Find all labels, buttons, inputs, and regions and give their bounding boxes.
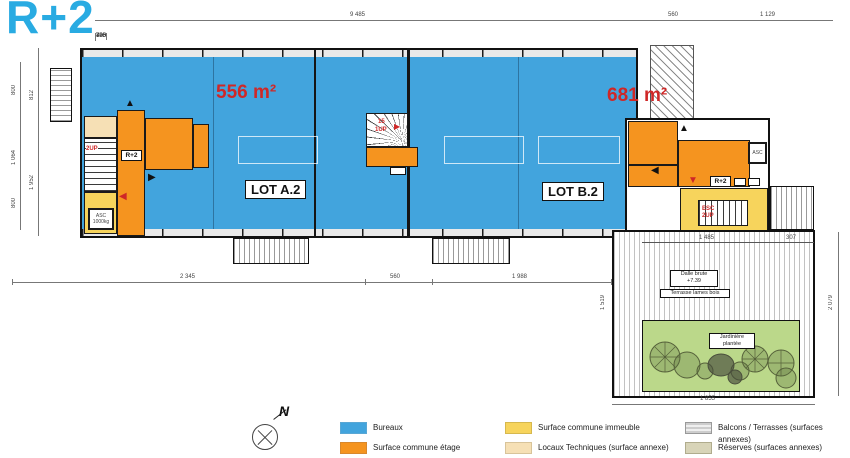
terrace-dim-1485: 1 485 xyxy=(699,235,714,242)
mid-stair-count: 15 xyxy=(378,119,385,125)
dim-left-800b: 800 xyxy=(11,198,17,208)
legend-swatch-bureaux xyxy=(340,422,367,434)
planter-label: Jardinière plantée xyxy=(709,333,755,349)
planter: Jardinière plantée xyxy=(642,320,800,392)
terrace-slab-note-2: +7.39 xyxy=(671,278,717,285)
right-core-wc-block xyxy=(628,121,678,165)
dim-bottom-1988: 1 988 xyxy=(512,274,527,281)
dim-left-1064: 1 064 xyxy=(11,150,17,165)
left-core-corridor xyxy=(117,110,145,236)
dim-top-560: 560 xyxy=(668,12,678,19)
dim-terrace-right: 2 079 xyxy=(828,295,834,310)
balcony-south-2 xyxy=(432,238,510,264)
terrace-dim-line xyxy=(642,242,814,243)
legend-label-reserves: Réserves (surfaces annexes) xyxy=(718,442,822,454)
page-title: R+2 xyxy=(6,0,95,44)
legend-label-bureaux: Bureaux xyxy=(373,422,403,434)
dim-line-terrace-right xyxy=(838,232,839,396)
dim-left-812: 812 xyxy=(29,90,35,100)
tick-b0 xyxy=(12,279,13,285)
legend-label-commune-immeuble: Surface commune immeuble xyxy=(538,422,640,434)
left-core-level-tag: R+2 xyxy=(121,150,142,161)
dim-line-top-1129 xyxy=(713,20,833,21)
dim-left-800a: 800 xyxy=(11,85,17,95)
terrace-upper-strip xyxy=(770,186,814,230)
dim-line-top-560 xyxy=(640,20,713,21)
compass-icon xyxy=(252,424,278,450)
mid-core-stair xyxy=(366,113,408,147)
legend-swatch-commune-etage xyxy=(340,442,367,454)
entry-arrow-up-left: ▲ xyxy=(125,99,135,109)
terrace-wood-note: Terrasse lames bois xyxy=(660,289,730,298)
tick-b2 xyxy=(432,279,433,285)
right-stair-label-1: ESC xyxy=(702,206,714,212)
ceiling-zone-b2 xyxy=(538,136,620,164)
entry-arrow-up-right: ▲ xyxy=(679,124,689,134)
mid-stair-direction: 1UP xyxy=(375,127,387,133)
mid-stair-arrow: ▶ xyxy=(394,122,400,132)
entry-arrow-left-right-core: ◀ xyxy=(651,166,659,176)
lot-b-area-label: 681 m² xyxy=(607,85,667,107)
dim-terrace-left: 1 519 xyxy=(600,295,606,310)
dim-top-segments: 335700700700700700700700790700428 xyxy=(95,33,833,41)
left-stair-direction: 2UP xyxy=(86,146,98,152)
left-core-wc-block xyxy=(145,118,193,170)
mid-core-duct-box xyxy=(390,167,406,175)
legend-swatch-reserves xyxy=(685,442,712,454)
mid-core-landing xyxy=(366,147,418,167)
legend-label-commune-etage: Surface commune étage xyxy=(373,442,460,454)
dim-line-bottom xyxy=(12,282,612,283)
dim-top-1129: 1 129 xyxy=(760,12,775,19)
tick-b3 xyxy=(611,279,612,285)
left-core-wc-annex xyxy=(193,124,209,168)
terrace-slab-note: Dalle brute +7.39 xyxy=(670,270,718,287)
planter-trees xyxy=(643,321,798,390)
dim-line-left-inner xyxy=(38,48,39,236)
tick-b1 xyxy=(365,279,366,285)
planter-label-2: plantée xyxy=(710,341,754,348)
dim-top-total: 9 485 xyxy=(350,12,365,19)
dim-left-1952: 1 952 xyxy=(29,175,35,190)
legend-label-locaux: Locaux Techniques (surface annexe) xyxy=(538,442,669,454)
left-core-technical-room xyxy=(84,116,117,138)
exit-arrow-red-left: ◀ xyxy=(119,192,127,202)
terrace-dim-307: 307 xyxy=(786,235,796,242)
facade-north-windows xyxy=(82,50,636,57)
lot-a-area-label: 556 m² xyxy=(216,82,276,104)
elevator-right-label: ASC xyxy=(750,151,765,157)
dim-bottom-560: 560 xyxy=(390,274,400,281)
legend-swatch-balcons xyxy=(685,422,712,434)
dim-terrace-bottom: 1 855 xyxy=(700,396,715,403)
entry-arrow-right-left-core: ▶ xyxy=(148,173,156,183)
lot-b-label: LOT B.2 xyxy=(542,182,604,201)
right-stair-label-2: 2UP xyxy=(702,213,714,219)
ceiling-zone-b1 xyxy=(444,136,524,164)
legend-swatch-locaux xyxy=(505,442,532,454)
floor-plan-canvas: R+2 9 485 560 1 129 33570070070070070070… xyxy=(0,0,850,458)
balcony-south-1 xyxy=(233,238,309,264)
right-core-duct-1 xyxy=(734,178,746,186)
right-core-elevator: ASC xyxy=(748,142,767,164)
compass-north-label: N xyxy=(279,403,289,419)
partition-line-1 xyxy=(213,57,214,229)
dim-line-terrace-bottom xyxy=(612,404,815,405)
dim-bottom-2345: 2 345 xyxy=(180,274,195,281)
left-core-elevator: ASC 1000kg xyxy=(88,208,114,230)
elevator-left-label-2: 1000kg xyxy=(90,220,112,226)
legend-swatch-commune-immeuble xyxy=(505,422,532,434)
exit-arrow-red-right: ▼ xyxy=(688,176,698,186)
right-core-duct-2 xyxy=(748,178,760,186)
right-core-level-tag: R+2 xyxy=(710,176,731,187)
dim-line-left-outer xyxy=(20,62,21,230)
balcony-west xyxy=(50,68,72,122)
terrace: 1 485 307 Dalle brute +7.39 Terrasse lam… xyxy=(612,230,815,398)
ceiling-zone-a xyxy=(238,136,318,164)
dim-line-top-total xyxy=(95,20,640,21)
lot-a-label: LOT A.2 xyxy=(245,180,306,199)
facade-south-windows xyxy=(82,229,636,236)
